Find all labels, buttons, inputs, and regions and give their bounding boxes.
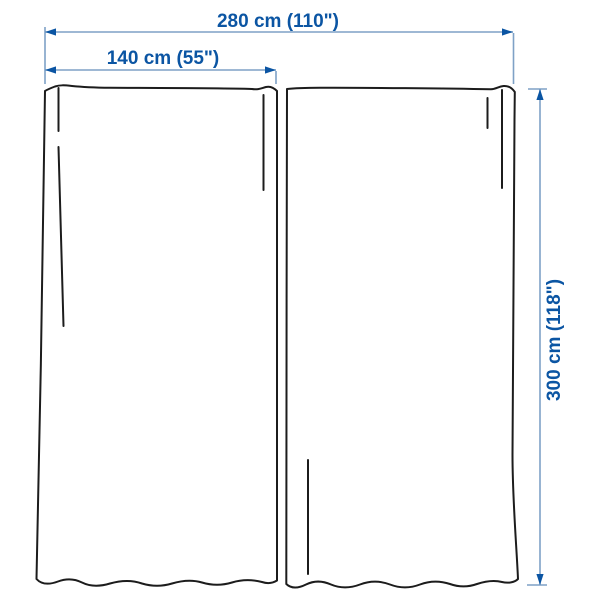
- total-width-label: 280 cm (110"): [217, 11, 339, 32]
- panel-width-dimension: 140 cm (55"): [45, 48, 276, 84]
- arrowhead-up-icon: [536, 89, 543, 100]
- curtain-dimension-diagram: 280 cm (110") 140 cm (55") 300 cm (118"): [0, 0, 600, 600]
- arrowhead-down-icon: [536, 574, 543, 585]
- diagram-canvas: 280 cm (110") 140 cm (55") 300 cm (118"): [0, 0, 600, 600]
- arrowhead-right-icon: [502, 28, 513, 35]
- left-panel-outline: [37, 85, 278, 585]
- right-curtain-panel: [286, 86, 518, 588]
- arrowhead-left-icon: [45, 28, 56, 35]
- arrowhead-left-icon: [45, 66, 56, 73]
- height-dimension: 300 cm (118"): [527, 89, 565, 585]
- panel-width-label: 140 cm (55"): [107, 48, 220, 69]
- height-label: 300 cm (118"): [544, 279, 565, 401]
- right-panel-outline: [286, 86, 518, 588]
- arrowhead-right-icon: [265, 66, 276, 73]
- left-curtain-panel: [37, 85, 278, 585]
